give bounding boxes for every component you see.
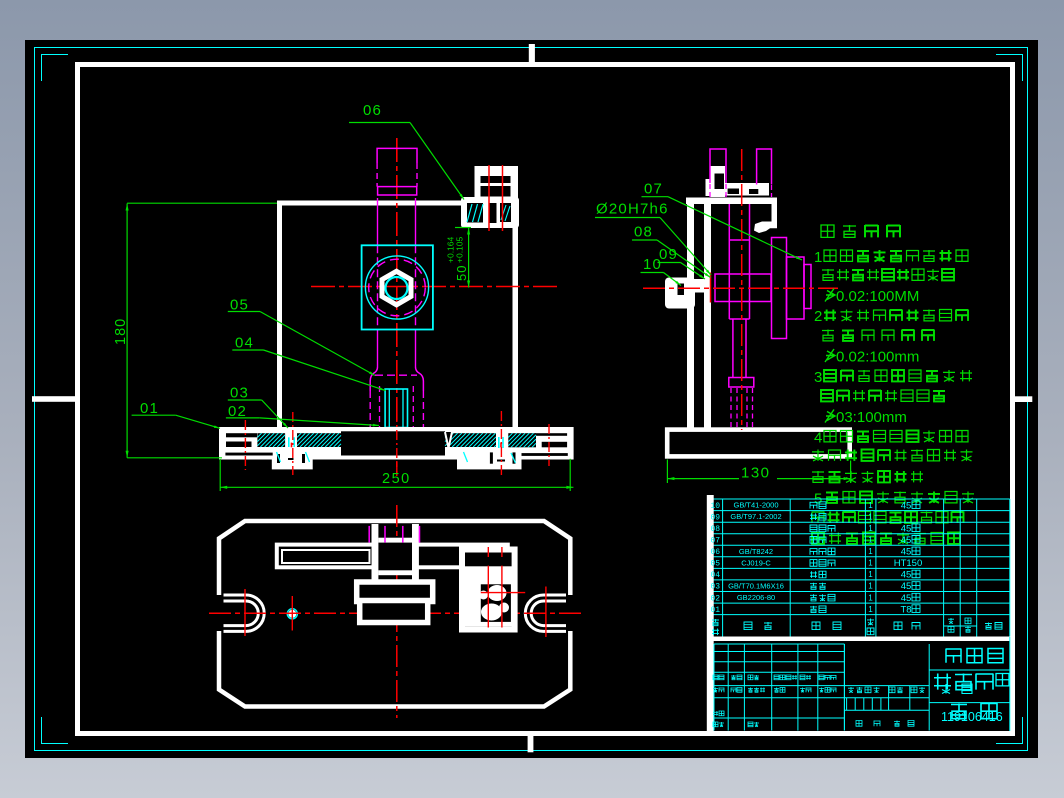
svg-text:03: 03 <box>711 583 721 592</box>
svg-text:09: 09 <box>711 513 721 522</box>
svg-text:1: 1 <box>868 524 873 533</box>
svg-text:GB/T41-2000: GB/T41-2000 <box>733 501 778 510</box>
svg-text:T8: T8 <box>900 604 911 615</box>
svg-text:1: 1 <box>868 536 873 545</box>
svg-text:119106416: 119106416 <box>941 710 1003 724</box>
svg-text:07: 07 <box>711 537 721 546</box>
svg-text:45: 45 <box>901 593 912 604</box>
svg-text:1: 1 <box>868 559 873 568</box>
svg-text:45: 45 <box>901 581 912 592</box>
svg-text:250: 250 <box>382 471 411 487</box>
svg-text:HT150: HT150 <box>894 558 923 569</box>
svg-text:1: 1 <box>868 512 873 521</box>
svg-text:1: 1 <box>868 570 873 579</box>
svg-text:45: 45 <box>901 535 912 546</box>
svg-text:1: 1 <box>814 249 822 266</box>
svg-text:1: 1 <box>868 501 873 510</box>
svg-text:45: 45 <box>901 500 912 511</box>
svg-text:130: 130 <box>741 465 771 482</box>
svg-text:10: 10 <box>711 502 721 511</box>
svg-text:GB2206-80: GB2206-80 <box>737 593 775 602</box>
svg-text:01: 01 <box>711 606 721 615</box>
svg-text:1: 1 <box>868 605 873 614</box>
svg-text:03:100mm: 03:100mm <box>836 409 907 426</box>
svg-text:1: 1 <box>868 582 873 591</box>
svg-text:45: 45 <box>901 523 912 534</box>
svg-text:1: 1 <box>868 593 873 602</box>
svg-text:GB/T70.1M6X16: GB/T70.1M6X16 <box>728 582 784 591</box>
svg-text:04: 04 <box>235 335 254 352</box>
svg-text:06: 06 <box>711 548 721 557</box>
svg-text:3: 3 <box>814 369 822 386</box>
svg-text:1: 1 <box>868 547 873 556</box>
svg-text:Ø20H7h6: Ø20H7h6 <box>596 201 669 218</box>
svg-text:GB/T8242: GB/T8242 <box>739 547 773 556</box>
svg-text:4: 4 <box>814 430 822 447</box>
svg-text:45: 45 <box>901 547 912 558</box>
svg-text:10: 10 <box>643 256 662 273</box>
svg-text:45: 45 <box>901 570 912 581</box>
svg-text:0.02:100mm: 0.02:100mm <box>836 349 919 366</box>
svg-text:08: 08 <box>711 525 721 534</box>
svg-text:08: 08 <box>634 224 653 241</box>
svg-text:CJ019-C: CJ019-C <box>741 558 771 567</box>
svg-text:GB/T97.1-2002: GB/T97.1-2002 <box>730 512 781 521</box>
svg-text:+0.105: +0.105 <box>455 236 465 263</box>
svg-text:2: 2 <box>814 308 822 325</box>
svg-text:05: 05 <box>711 560 721 569</box>
svg-text:02: 02 <box>711 594 721 603</box>
svg-text:03: 03 <box>230 385 249 402</box>
svg-text:180: 180 <box>113 318 129 345</box>
svg-text:0.02:100MM: 0.02:100MM <box>836 288 919 305</box>
svg-text:06: 06 <box>363 102 382 119</box>
svg-text:50: 50 <box>454 265 469 281</box>
svg-text:04: 04 <box>711 571 721 580</box>
svg-text:07: 07 <box>644 181 663 198</box>
